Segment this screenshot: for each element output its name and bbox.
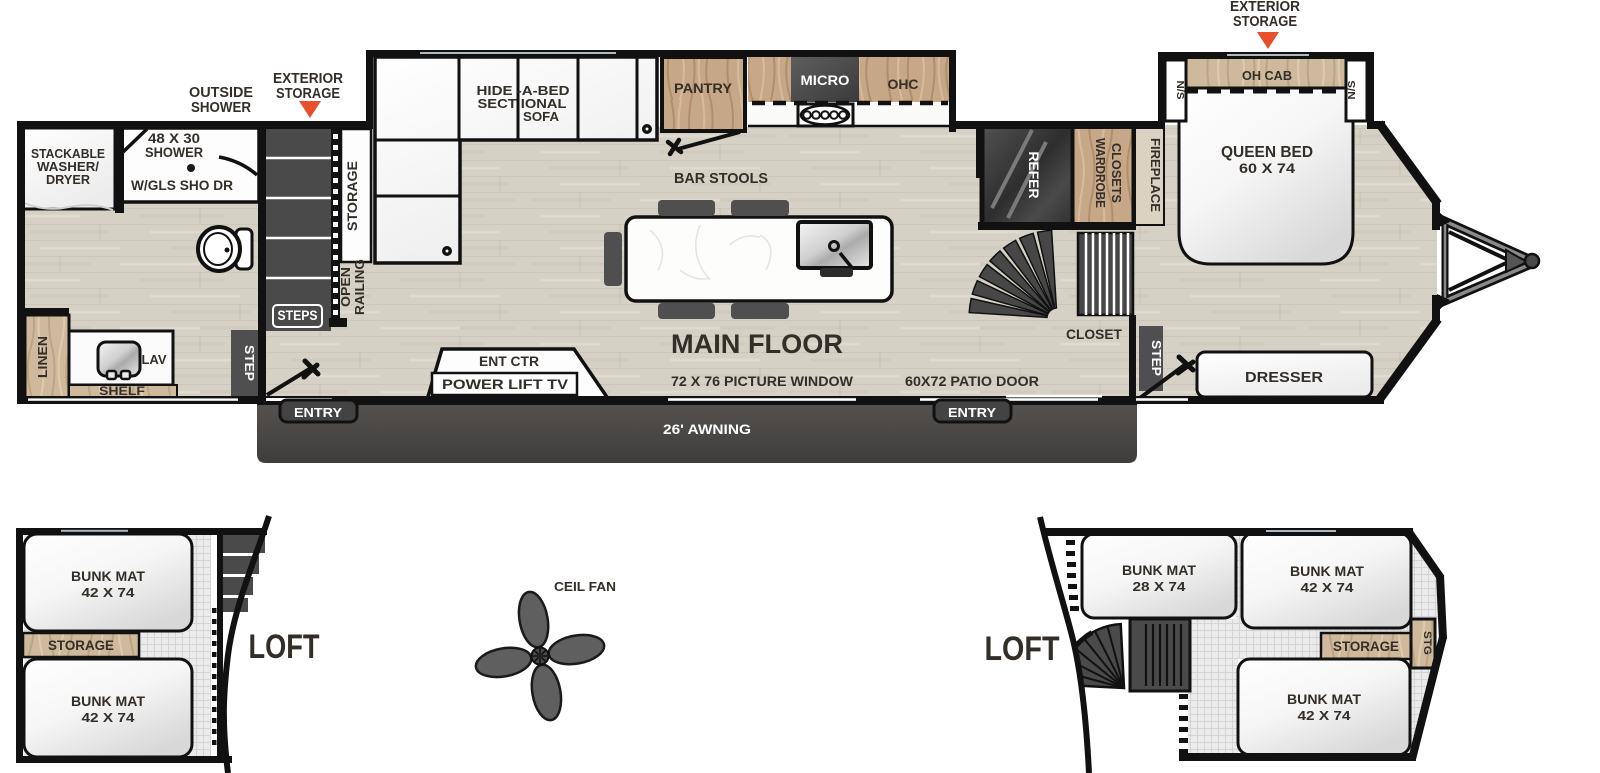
svg-text:42 X 74: 42 X 74 — [1298, 708, 1352, 723]
svg-text:72 X 76 PICTURE WINDOW: 72 X 76 PICTURE WINDOW — [671, 374, 853, 389]
svg-text:LOFT: LOFT — [249, 628, 320, 666]
svg-text:STACKABLE: STACKABLE — [31, 147, 105, 161]
svg-text:BUNK MAT: BUNK MAT — [1287, 691, 1361, 707]
svg-text:PANTRY: PANTRY — [674, 81, 732, 96]
svg-text:WARDROBE: WARDROBE — [1093, 138, 1108, 208]
svg-text:CLOSET: CLOSET — [1066, 327, 1123, 342]
svg-text:28 X 74: 28 X 74 — [1133, 579, 1187, 594]
svg-text:LINEN: LINEN — [35, 336, 50, 378]
svg-text:CLOSETS: CLOSETS — [1109, 143, 1124, 203]
svg-text:STG: STG — [1421, 631, 1433, 655]
svg-text:POWER LIFT TV: POWER LIFT TV — [442, 376, 569, 392]
svg-text:N/S: N/S — [1346, 81, 1358, 100]
svg-text:42 X 74: 42 X 74 — [82, 710, 136, 725]
svg-text:EXTERIOR: EXTERIOR — [1230, 0, 1300, 15]
svg-text:STORAGE: STORAGE — [1233, 14, 1297, 30]
svg-text:MICRO: MICRO — [801, 72, 850, 88]
svg-text:ENTRY: ENTRY — [948, 405, 996, 420]
svg-text:60X72 PATIO DOOR: 60X72 PATIO DOOR — [905, 374, 1039, 389]
svg-text:DRESSER: DRESSER — [1245, 370, 1324, 386]
svg-text:LOFT: LOFT — [985, 630, 1060, 668]
svg-text:BUNK MAT: BUNK MAT — [71, 568, 145, 584]
svg-text:BAR STOOLS: BAR STOOLS — [674, 170, 768, 187]
svg-text:N/S: N/S — [1174, 81, 1186, 100]
svg-text:SHOWER: SHOWER — [191, 100, 251, 116]
svg-text:OUTSIDE: OUTSIDE — [189, 85, 253, 101]
svg-text:REFER: REFER — [1026, 152, 1041, 199]
svg-text:STEPS: STEPS — [278, 308, 318, 323]
svg-text:STEP: STEP — [1149, 340, 1163, 376]
svg-text:OPEN: OPEN — [339, 267, 353, 307]
svg-text:BUNK MAT: BUNK MAT — [71, 693, 145, 709]
svg-text:CEIL FAN: CEIL FAN — [554, 579, 616, 594]
svg-text:SHOWER: SHOWER — [145, 145, 203, 160]
svg-text:LAV: LAV — [141, 352, 166, 367]
svg-text:FIREPLACE: FIREPLACE — [1148, 138, 1162, 212]
svg-text:OHC: OHC — [888, 77, 919, 92]
svg-text:BUNK MAT: BUNK MAT — [1122, 562, 1196, 578]
svg-text:42 X 74: 42 X 74 — [1301, 580, 1355, 595]
svg-text:STORAGE: STORAGE — [48, 637, 114, 653]
svg-text:ENT CTR: ENT CTR — [479, 354, 539, 369]
svg-text:DRYER: DRYER — [46, 173, 90, 187]
svg-text:60 X 74: 60 X 74 — [1239, 160, 1295, 176]
svg-text:BUNK MAT: BUNK MAT — [1290, 563, 1364, 579]
svg-text:STORAGE: STORAGE — [1333, 638, 1399, 654]
svg-text:OH CAB: OH CAB — [1242, 69, 1292, 83]
svg-text:STEP: STEP — [242, 345, 256, 381]
svg-text:WASHER/: WASHER/ — [37, 160, 100, 174]
svg-text:26' AWNING: 26' AWNING — [663, 422, 751, 437]
svg-text:STORAGE: STORAGE — [345, 161, 360, 231]
svg-text:48 X 30: 48 X 30 — [148, 131, 200, 146]
svg-text:SOFA: SOFA — [523, 109, 560, 124]
svg-text:EXTERIOR: EXTERIOR — [273, 71, 343, 87]
svg-text:ENTRY: ENTRY — [294, 405, 342, 420]
svg-text:42 X 74: 42 X 74 — [82, 585, 136, 600]
svg-text:QUEEN BED: QUEEN BED — [1221, 144, 1313, 161]
svg-text:W/GLS SHO DR: W/GLS SHO DR — [131, 178, 233, 193]
svg-text:MAIN FLOOR: MAIN FLOOR — [671, 329, 843, 359]
svg-text:STORAGE: STORAGE — [276, 86, 340, 102]
svg-text:RAILING: RAILING — [353, 259, 367, 315]
